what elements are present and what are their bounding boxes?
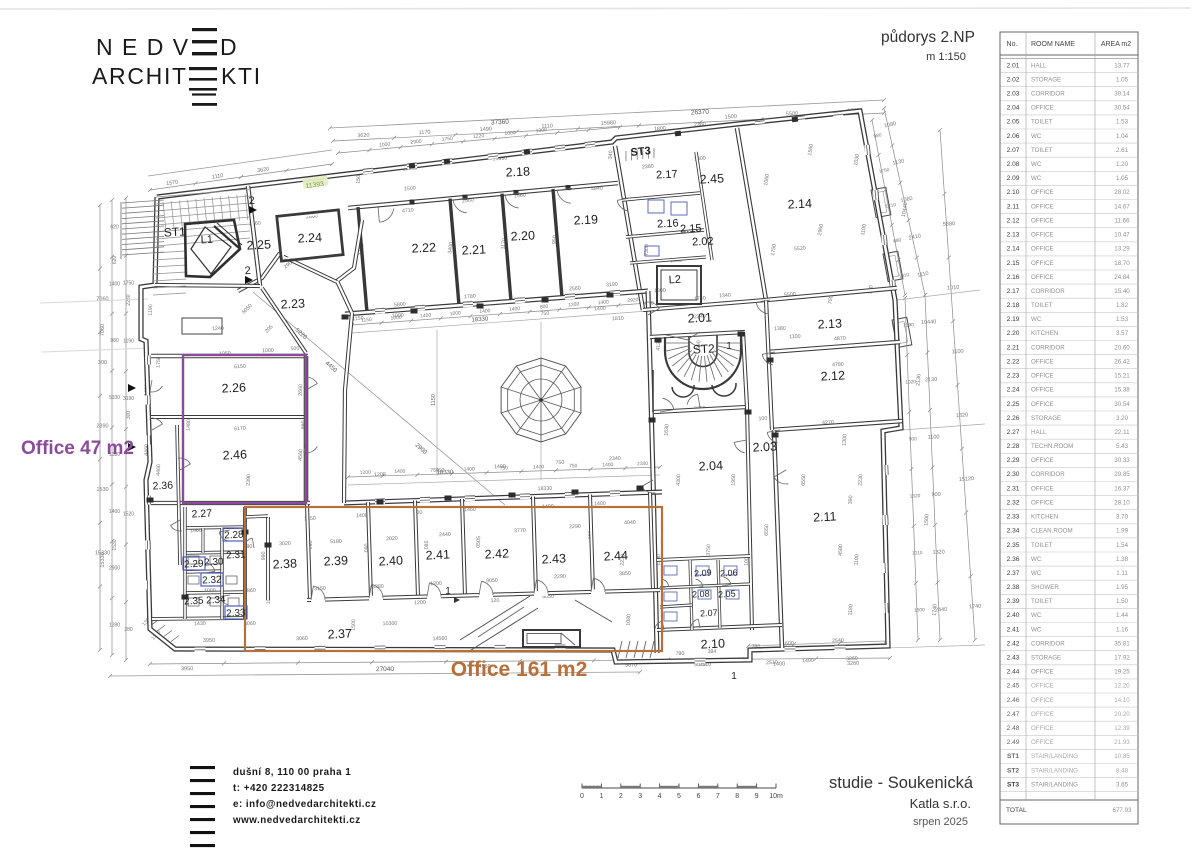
svg-text:120: 120 — [490, 598, 499, 604]
svg-text:2.30: 2.30 — [1007, 471, 1020, 478]
svg-text:6170: 6170 — [234, 426, 246, 432]
svg-text:6150: 6150 — [234, 364, 246, 370]
svg-text:2.08: 2.08 — [1007, 161, 1020, 168]
svg-text:OFFICE: OFFICE — [1031, 401, 1054, 408]
svg-text:1400: 1400 — [356, 513, 368, 519]
svg-text:26370: 26370 — [691, 109, 710, 117]
svg-text:1400: 1400 — [109, 509, 120, 515]
svg-text:3850: 3850 — [619, 571, 631, 577]
svg-text:3.70: 3.70 — [1116, 514, 1129, 521]
svg-text:1320: 1320 — [910, 493, 921, 499]
svg-text:1390: 1390 — [109, 623, 120, 629]
svg-text:1430: 1430 — [194, 621, 206, 627]
svg-text:10300: 10300 — [382, 621, 397, 628]
svg-text:1: 1 — [445, 586, 451, 597]
svg-text:20.20: 20.20 — [1114, 711, 1130, 718]
svg-text:WC: WC — [1031, 570, 1042, 577]
svg-text:2.09: 2.09 — [694, 568, 712, 579]
svg-text:2660: 2660 — [298, 384, 304, 396]
svg-text:15980: 15980 — [601, 120, 617, 127]
svg-text:2390: 2390 — [96, 424, 108, 430]
svg-text:1810: 1810 — [612, 316, 624, 323]
svg-text:2.41: 2.41 — [1007, 626, 1020, 633]
svg-text:14.10: 14.10 — [1114, 697, 1130, 704]
svg-text:4580: 4580 — [838, 544, 844, 556]
svg-text:2230: 2230 — [858, 474, 864, 486]
svg-text:2.25: 2.25 — [1007, 401, 1020, 408]
svg-text:NEDV: NEDV — [96, 34, 198, 60]
svg-text:KITCHEN: KITCHEN — [1031, 330, 1058, 337]
svg-text:2.32: 2.32 — [1007, 499, 1020, 506]
svg-text:1480: 1480 — [186, 419, 192, 431]
svg-text:1.04: 1.04 — [1116, 133, 1129, 140]
svg-text:1530: 1530 — [112, 539, 118, 550]
svg-text:2540: 2540 — [832, 638, 844, 644]
svg-text:9: 9 — [755, 793, 759, 800]
svg-text:2.17: 2.17 — [656, 168, 678, 181]
svg-text:1000: 1000 — [504, 130, 516, 137]
svg-text:ROOM NAME: ROOM NAME — [1031, 41, 1075, 48]
svg-text:2.48: 2.48 — [1007, 725, 1020, 732]
svg-text:TOILET: TOILET — [1031, 302, 1053, 309]
svg-text:10m: 10m — [769, 793, 783, 800]
svg-text:1200: 1200 — [374, 472, 386, 479]
svg-text:3.65: 3.65 — [1116, 781, 1129, 788]
svg-text:750: 750 — [435, 468, 444, 474]
svg-text:1.54: 1.54 — [1116, 542, 1129, 549]
svg-text:100: 100 — [758, 416, 767, 422]
svg-text:TOILET: TOILET — [1031, 147, 1053, 154]
svg-text:300: 300 — [98, 360, 107, 366]
svg-text:18.70: 18.70 — [1114, 260, 1130, 267]
svg-text:2.33: 2.33 — [226, 607, 246, 619]
svg-text:D: D — [220, 34, 237, 60]
svg-text:2290: 2290 — [569, 524, 581, 530]
svg-text:2.28: 2.28 — [1007, 443, 1020, 450]
svg-text:2.43: 2.43 — [1007, 655, 1020, 662]
svg-text:1400: 1400 — [109, 281, 120, 287]
svg-text:2900: 2900 — [109, 566, 120, 572]
svg-text:OFFICE: OFFICE — [1031, 274, 1054, 281]
svg-text:2.02: 2.02 — [1007, 77, 1020, 84]
svg-text:980: 980 — [110, 338, 119, 344]
svg-text:2.15: 2.15 — [1007, 260, 1020, 267]
svg-text:2.39: 2.39 — [1007, 598, 1020, 605]
svg-text:4560: 4560 — [298, 449, 304, 461]
svg-text:3950: 3950 — [203, 638, 215, 644]
svg-text:3190: 3190 — [123, 396, 134, 402]
svg-text:39.14: 39.14 — [1114, 91, 1130, 98]
svg-text:L2: L2 — [668, 274, 681, 287]
svg-text:půdorys 2.NP: půdorys 2.NP — [881, 29, 975, 46]
svg-text:1000: 1000 — [379, 142, 391, 149]
svg-text:2.16: 2.16 — [657, 217, 679, 230]
svg-text:CLEAN.ROOM: CLEAN.ROOM — [1031, 528, 1073, 535]
svg-text:30.54: 30.54 — [1114, 105, 1130, 112]
svg-text:TOILET: TOILET — [1031, 598, 1053, 605]
svg-text:2.46: 2.46 — [222, 447, 247, 462]
svg-text:2.23: 2.23 — [280, 296, 305, 311]
svg-text:1080: 1080 — [626, 614, 633, 626]
svg-text:2.44: 2.44 — [603, 548, 628, 563]
svg-text:5.43: 5.43 — [1116, 443, 1129, 450]
svg-text:800: 800 — [540, 304, 549, 311]
svg-text:KITCHEN: KITCHEN — [1031, 514, 1058, 521]
svg-text:1.20: 1.20 — [1116, 161, 1129, 168]
svg-text:2.10: 2.10 — [700, 636, 725, 651]
svg-text:1150: 1150 — [352, 316, 364, 323]
svg-text:HALL: HALL — [1031, 429, 1047, 436]
svg-text:1490: 1490 — [480, 126, 493, 133]
svg-text:OFFICE: OFFICE — [1031, 189, 1054, 196]
svg-text:27040: 27040 — [376, 666, 395, 673]
svg-text:30.33: 30.33 — [1114, 457, 1130, 464]
svg-text:1240: 1240 — [212, 326, 224, 332]
svg-text:1740: 1740 — [932, 604, 939, 616]
svg-text:10.47: 10.47 — [1114, 232, 1130, 239]
svg-text:No.: No. — [1007, 41, 1018, 48]
svg-text:6550: 6550 — [764, 524, 770, 536]
svg-text:STAIR/LANDING: STAIR/LANDING — [1031, 767, 1078, 774]
svg-text:2.20: 2.20 — [510, 228, 535, 243]
svg-text:1: 1 — [726, 341, 732, 352]
svg-text:1100: 1100 — [952, 349, 964, 356]
svg-text:1180: 1180 — [848, 604, 855, 616]
svg-text:2.28: 2.28 — [224, 529, 244, 541]
svg-text:13.29: 13.29 — [1114, 246, 1130, 253]
svg-text:8.48: 8.48 — [1116, 767, 1129, 774]
svg-text:ST3: ST3 — [1007, 781, 1019, 788]
svg-text:1400: 1400 — [479, 308, 491, 315]
svg-text:2.26: 2.26 — [1007, 415, 1020, 422]
svg-text:ST1: ST1 — [163, 224, 186, 239]
svg-text:12.39: 12.39 — [1114, 725, 1130, 732]
svg-text:2130: 2130 — [925, 377, 938, 384]
svg-text:2.34: 2.34 — [206, 594, 226, 606]
svg-text:2.11: 2.11 — [1007, 203, 1020, 210]
svg-text:1.44: 1.44 — [1116, 612, 1129, 619]
svg-text:29.85: 29.85 — [1114, 471, 1130, 478]
svg-text:2.14: 2.14 — [787, 196, 812, 211]
svg-text:35.81: 35.81 — [1114, 640, 1130, 647]
svg-text:SHOWER: SHOWER — [1031, 584, 1059, 591]
svg-text:1.99: 1.99 — [1116, 528, 1129, 535]
svg-text:1200: 1200 — [360, 470, 372, 476]
svg-text:2130: 2130 — [916, 374, 923, 386]
svg-text:5180: 5180 — [330, 539, 342, 545]
svg-text:Office 47 m2: Office 47 m2 — [21, 438, 134, 459]
svg-text:OFFICE: OFFICE — [1031, 669, 1054, 676]
svg-text:2.06: 2.06 — [720, 568, 738, 579]
svg-text:2.26: 2.26 — [221, 380, 246, 395]
svg-text:1500: 1500 — [724, 114, 737, 121]
svg-text:3020: 3020 — [279, 541, 291, 547]
svg-text:37360: 37360 — [491, 119, 510, 127]
svg-text:OFFICE: OFFICE — [1031, 499, 1054, 506]
svg-text:WC: WC — [1031, 133, 1042, 140]
svg-text:OFFICE: OFFICE — [1031, 373, 1054, 380]
svg-text:1780: 1780 — [464, 294, 476, 301]
svg-text:2.31: 2.31 — [226, 549, 246, 561]
svg-text:OFFICE: OFFICE — [1031, 105, 1054, 112]
svg-text:TOTAL: TOTAL — [1006, 807, 1027, 814]
svg-text:1520: 1520 — [123, 512, 134, 518]
svg-text:3190: 3190 — [606, 282, 618, 289]
svg-text:2.39: 2.39 — [323, 553, 348, 568]
svg-text:2: 2 — [244, 265, 251, 277]
svg-text:2.24: 2.24 — [297, 230, 322, 245]
svg-text:2.45: 2.45 — [699, 171, 724, 186]
svg-text:2: 2 — [619, 793, 623, 800]
svg-text:2.19: 2.19 — [573, 212, 598, 227]
svg-text:1.16: 1.16 — [1116, 626, 1129, 633]
svg-text:t: +420 222314825: t: +420 222314825 — [233, 783, 325, 794]
svg-text:2.22: 2.22 — [1007, 358, 1020, 365]
svg-text:2.29: 2.29 — [184, 558, 204, 570]
svg-text:5680: 5680 — [943, 221, 956, 228]
svg-text:1400: 1400 — [802, 658, 814, 664]
svg-text:2.27: 2.27 — [191, 507, 212, 520]
svg-text:2510: 2510 — [766, 660, 778, 666]
svg-text:2.04: 2.04 — [1007, 105, 1020, 112]
svg-text:750: 750 — [555, 460, 564, 466]
svg-text:OFFICE: OFFICE — [1031, 218, 1054, 225]
svg-text:WC: WC — [1031, 612, 1042, 619]
svg-text:2.47: 2.47 — [1007, 711, 1020, 718]
svg-text:14.67: 14.67 — [1114, 203, 1130, 210]
svg-text:2.13: 2.13 — [1007, 232, 1020, 239]
svg-text:2.46: 2.46 — [1007, 697, 1020, 704]
svg-text:1500: 1500 — [924, 514, 931, 526]
svg-text:3060: 3060 — [296, 636, 308, 642]
svg-text:1500: 1500 — [351, 619, 357, 631]
svg-text:2.31: 2.31 — [1007, 485, 1020, 492]
svg-text:500: 500 — [290, 346, 299, 352]
svg-text:2.04: 2.04 — [698, 458, 723, 473]
svg-text:1200: 1200 — [414, 600, 426, 606]
svg-text:1000: 1000 — [450, 310, 462, 317]
svg-text:WC: WC — [1031, 175, 1042, 182]
svg-text:4710: 4710 — [402, 207, 414, 214]
svg-text:1150: 1150 — [431, 394, 437, 406]
svg-text:12.20: 12.20 — [1114, 683, 1130, 690]
svg-text:750: 750 — [540, 311, 549, 318]
svg-text:2380: 2380 — [642, 163, 654, 170]
svg-text:2.34: 2.34 — [1007, 528, 1020, 535]
svg-text:4460: 4460 — [156, 464, 162, 476]
svg-text:2920: 2920 — [627, 297, 639, 304]
svg-text:OFFICE: OFFICE — [1031, 697, 1054, 704]
svg-text:1010: 1010 — [912, 550, 923, 556]
svg-text:10.85: 10.85 — [1114, 753, 1130, 760]
svg-text:HALL: HALL — [1031, 62, 1047, 69]
svg-text:WC: WC — [1031, 626, 1042, 633]
svg-text:2.19: 2.19 — [1007, 316, 1020, 323]
svg-text:ST2: ST2 — [692, 341, 715, 356]
svg-text:1400: 1400 — [509, 306, 521, 313]
svg-text:Office 161 m2: Office 161 m2 — [451, 658, 588, 681]
svg-text:0505: 0505 — [476, 536, 482, 548]
svg-text:1.05: 1.05 — [1116, 175, 1129, 182]
svg-text:26.42: 26.42 — [1114, 358, 1130, 365]
svg-text:1170: 1170 — [419, 130, 431, 137]
svg-text:2.21: 2.21 — [1007, 344, 1020, 351]
svg-text:780: 780 — [675, 651, 684, 657]
svg-text:1500: 1500 — [404, 186, 416, 193]
svg-text:2.02: 2.02 — [692, 235, 714, 248]
svg-text:OFFICE: OFFICE — [1031, 457, 1054, 464]
svg-text:3620: 3620 — [357, 133, 370, 140]
svg-text:1300: 1300 — [535, 127, 547, 134]
svg-text:1000: 1000 — [392, 313, 404, 320]
svg-text:2.24: 2.24 — [1007, 387, 1020, 394]
svg-text:1400: 1400 — [394, 469, 406, 475]
svg-text:2290: 2290 — [554, 574, 566, 580]
svg-text:677.93: 677.93 — [1113, 807, 1132, 814]
svg-text:WC: WC — [1031, 316, 1042, 323]
svg-text:1220: 1220 — [473, 133, 485, 140]
svg-text:WC: WC — [1031, 556, 1042, 563]
svg-text:2.03: 2.03 — [1007, 91, 1020, 98]
svg-text:5330: 5330 — [109, 395, 120, 401]
svg-text:ARCHIT: ARCHIT — [92, 63, 188, 89]
svg-text:2.30: 2.30 — [204, 556, 224, 568]
svg-text:10440: 10440 — [921, 319, 937, 326]
svg-text:2.01: 2.01 — [687, 310, 712, 325]
svg-text:19.25: 19.25 — [1114, 669, 1130, 676]
svg-text:24.84: 24.84 — [1114, 274, 1130, 281]
svg-text:1750: 1750 — [441, 136, 453, 143]
svg-text:4: 4 — [658, 793, 662, 800]
svg-text:1200: 1200 — [568, 302, 580, 309]
svg-text:2.49: 2.49 — [1007, 739, 1020, 746]
svg-text:2900: 2900 — [410, 139, 422, 146]
svg-text:750: 750 — [569, 463, 578, 469]
svg-text:3750: 3750 — [706, 544, 712, 556]
svg-text:16.37: 16.37 — [1114, 485, 1130, 492]
svg-text:4780: 4780 — [832, 362, 844, 369]
svg-text:2.27: 2.27 — [1007, 429, 1020, 436]
svg-text:OFFICE: OFFICE — [1031, 725, 1054, 732]
svg-text:1800: 1800 — [654, 288, 666, 294]
svg-text:15.40: 15.40 — [1114, 288, 1130, 295]
svg-text:2.23: 2.23 — [1007, 373, 1020, 380]
svg-text:2.20: 2.20 — [1007, 330, 1020, 337]
svg-text:13.77: 13.77 — [1114, 62, 1130, 69]
svg-text:WC: WC — [1031, 161, 1042, 168]
svg-text:1.38: 1.38 — [1116, 556, 1129, 563]
svg-text:28.02: 28.02 — [1114, 189, 1130, 196]
svg-text:2.11: 2.11 — [813, 509, 837, 524]
svg-text:11.66: 11.66 — [1114, 218, 1130, 225]
svg-text:14560: 14560 — [432, 636, 447, 643]
svg-text:18330: 18330 — [471, 316, 489, 323]
svg-text:1190: 1190 — [123, 338, 134, 344]
svg-text:1010: 1010 — [947, 285, 960, 292]
svg-text:2.07: 2.07 — [700, 608, 718, 619]
svg-text:20.60: 20.60 — [1114, 344, 1130, 351]
svg-text:4300: 4300 — [676, 474, 682, 486]
svg-text:4040: 4040 — [624, 520, 636, 526]
svg-text:2.33: 2.33 — [1007, 514, 1020, 521]
svg-text:6550: 6550 — [801, 474, 807, 486]
svg-text:L1: L1 — [200, 234, 213, 247]
svg-text:STORAGE: STORAGE — [1031, 77, 1061, 84]
svg-text:OFFICE: OFFICE — [1031, 485, 1054, 492]
svg-text:2.08: 2.08 — [692, 589, 710, 600]
svg-text:17.92: 17.92 — [1114, 655, 1130, 662]
svg-text:ST3: ST3 — [630, 145, 651, 159]
svg-text:STAIR/LANDING: STAIR/LANDING — [1031, 781, 1078, 788]
svg-text:e: info@nedvedarchitekti.cz: e: info@nedvedarchitekti.cz — [233, 799, 376, 810]
svg-text:ST2: ST2 — [1007, 767, 1019, 774]
svg-text:CORRIDOR: CORRIDOR — [1031, 640, 1065, 647]
svg-text:STAIR/LANDING: STAIR/LANDING — [1031, 753, 1078, 760]
svg-text:3.57: 3.57 — [1116, 330, 1129, 337]
svg-text:2.45: 2.45 — [1007, 683, 1020, 690]
svg-text:15.21: 15.21 — [1114, 373, 1130, 380]
svg-text:3.20: 3.20 — [1116, 415, 1129, 422]
svg-text:1320: 1320 — [932, 549, 945, 556]
svg-text:30.54: 30.54 — [1114, 401, 1130, 408]
svg-text:TOILET: TOILET — [1031, 542, 1053, 549]
svg-text:2.17: 2.17 — [1007, 288, 1020, 295]
svg-text:1100: 1100 — [789, 334, 801, 341]
svg-text:OFFICE: OFFICE — [1031, 232, 1054, 239]
svg-text:2.36: 2.36 — [1007, 556, 1020, 563]
svg-text:2.21: 2.21 — [461, 242, 486, 257]
svg-text:m 1:150: m 1:150 — [926, 51, 966, 63]
svg-text:1.11: 1.11 — [1116, 570, 1128, 577]
svg-text:ST1: ST1 — [1007, 753, 1019, 760]
svg-text:1400: 1400 — [594, 306, 606, 313]
svg-text:OFFICE: OFFICE — [1031, 387, 1054, 394]
svg-text:Katla s.r.o.: Katla s.r.o. — [910, 796, 971, 811]
svg-text:2.35: 2.35 — [1007, 542, 1020, 549]
svg-text:22.11: 22.11 — [1114, 429, 1130, 436]
svg-text:OFFICE: OFFICE — [1031, 203, 1054, 210]
svg-text:2: 2 — [248, 195, 255, 207]
svg-text:studie - Soukenická: studie - Soukenická — [829, 774, 974, 792]
svg-text:2.35: 2.35 — [184, 595, 204, 607]
svg-text:1400: 1400 — [420, 313, 432, 320]
svg-text:2.16: 2.16 — [1007, 274, 1020, 281]
svg-text:CORRIDOR: CORRIDOR — [1031, 288, 1065, 295]
svg-text:620: 620 — [110, 224, 119, 230]
svg-text:AREA m2: AREA m2 — [1101, 41, 1131, 48]
svg-text:2.36: 2.36 — [152, 479, 173, 492]
svg-text:5520: 5520 — [794, 246, 806, 253]
svg-text:TOILET: TOILET — [1031, 119, 1053, 126]
svg-text:1.95: 1.95 — [1116, 584, 1129, 591]
svg-text:1380: 1380 — [774, 326, 786, 333]
svg-text:1740: 1740 — [694, 296, 706, 303]
svg-text:2.05: 2.05 — [718, 589, 736, 600]
svg-text:21.93: 21.93 — [1114, 739, 1130, 746]
svg-text:2.32: 2.32 — [202, 574, 222, 586]
svg-text:2.07: 2.07 — [1007, 147, 1020, 154]
svg-text:15.38: 15.38 — [1114, 387, 1130, 394]
svg-text:28.10: 28.10 — [1114, 499, 1130, 506]
svg-text:2.14: 2.14 — [1007, 246, 1020, 253]
svg-text:1.05: 1.05 — [1116, 77, 1129, 84]
svg-text:340: 340 — [608, 150, 615, 159]
svg-text:OFFICE: OFFICE — [1031, 246, 1054, 253]
svg-text:2.01: 2.01 — [1007, 62, 1020, 69]
svg-text:3950: 3950 — [181, 666, 193, 672]
svg-text:STORAGE: STORAGE — [1031, 415, 1061, 422]
svg-text:1100: 1100 — [854, 554, 861, 566]
